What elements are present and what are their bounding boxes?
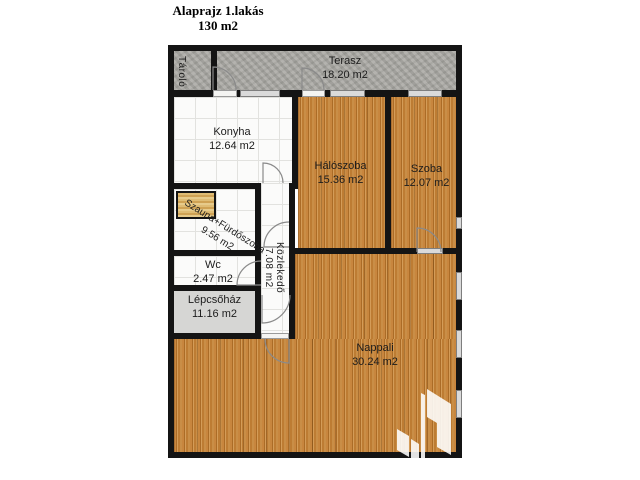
room-nappali-upper bbox=[295, 254, 456, 339]
label-nappali: Nappali 30.24 m2 bbox=[315, 341, 435, 370]
label-terasz: Terasz 18.20 m2 bbox=[285, 54, 405, 83]
label-kozlekedo: Közlekedő 7.08 m2 bbox=[263, 223, 285, 313]
label-wc: Wc 2.47 m2 bbox=[173, 258, 253, 287]
label-lepcsohaz: Lépcsőház 11.16 m2 bbox=[172, 293, 257, 322]
label-szoba: Szoba 12.07 m2 bbox=[379, 162, 474, 191]
label-konyha: Konyha 12.64 m2 bbox=[182, 125, 282, 154]
door-sill bbox=[417, 248, 443, 254]
building-logo-icon bbox=[393, 383, 463, 469]
wall bbox=[174, 333, 261, 339]
floorplan-page: Alaprajz 1.lakás 130 m2 bbox=[0, 0, 640, 480]
page-title: Alaprajz 1.lakás 130 m2 bbox=[98, 4, 338, 34]
window bbox=[408, 90, 442, 97]
window bbox=[240, 90, 280, 97]
plan-title: Alaprajz 1.lakás bbox=[98, 4, 338, 19]
window bbox=[330, 90, 365, 97]
door-sill bbox=[213, 90, 237, 97]
floorplan-drawing: Terasz 18.20 m2 Tároló Konyha 12.64 m2 H… bbox=[168, 45, 462, 458]
window bbox=[456, 272, 462, 300]
window bbox=[456, 330, 462, 358]
door-sill bbox=[302, 90, 325, 97]
plan-total-area: 130 m2 bbox=[98, 19, 338, 34]
wall bbox=[174, 183, 261, 189]
door-sill bbox=[261, 333, 289, 339]
wall bbox=[211, 51, 217, 90]
label-haloszoba: Hálószoba 15.36 m2 bbox=[293, 159, 388, 188]
window bbox=[456, 217, 462, 229]
watermark-logo bbox=[393, 383, 463, 469]
wall bbox=[289, 183, 295, 339]
label-tarolo: Tároló bbox=[176, 53, 187, 91]
